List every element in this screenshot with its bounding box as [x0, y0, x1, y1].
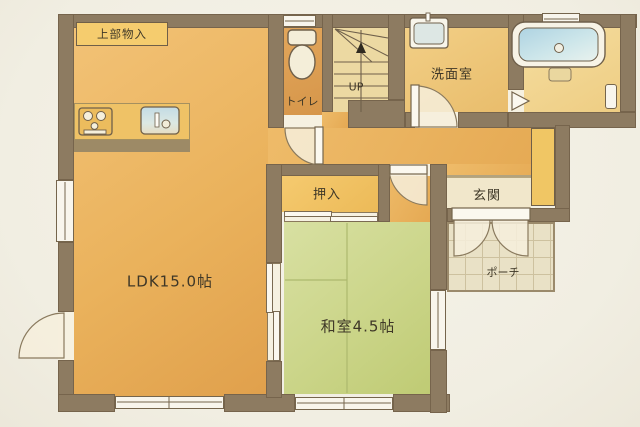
shoe-cabinet — [531, 128, 555, 206]
wall-partition-lower — [266, 361, 282, 398]
closet-label: 押入 — [313, 184, 341, 203]
window-washitsu-right — [430, 290, 446, 350]
wall-washroom-bottom — [458, 112, 508, 128]
wall-genkan-bottom-left — [447, 208, 455, 222]
kitchen-counter-edge — [74, 140, 190, 152]
window-bathroom-right — [605, 84, 617, 109]
wall-washitsu-right-lower — [430, 350, 447, 413]
entry-door-opening — [455, 208, 528, 222]
window-ldk-bottom — [115, 396, 224, 409]
wall-stairs-bottom — [348, 100, 405, 128]
porch-floor — [447, 222, 555, 292]
washroom-label: 洗面室 — [431, 64, 473, 83]
ldk-washitsu-sliding-panel-a — [266, 263, 273, 313]
wall-left-middle — [58, 242, 74, 312]
washitsu-door-opening — [390, 164, 430, 176]
wall-stairs-washroom — [388, 14, 405, 100]
wall-hall-top-stub — [405, 112, 415, 128]
wall-closet-right — [378, 164, 390, 222]
closet-sliding-door-panel-right — [330, 216, 378, 222]
window-toilet-top — [283, 15, 316, 27]
toilet-door-opening — [284, 115, 322, 128]
room-washitsu — [284, 222, 430, 394]
upper-storage-label: 上部物入 — [97, 26, 147, 42]
wall-bottom-left — [58, 394, 115, 412]
wall-left-upper — [58, 14, 74, 180]
washitsu-label: 和室4.5帖 — [321, 316, 396, 337]
room-ldk — [74, 28, 268, 396]
window-ldk-left — [56, 180, 74, 242]
stairs-up-label: UP — [349, 81, 364, 94]
corridor-hall-floor — [268, 128, 555, 164]
ldk-exterior-door-opening — [58, 312, 74, 360]
window-bathroom-top — [542, 13, 580, 25]
wall-partition-upper — [266, 164, 282, 263]
porch-label: ポーチ — [487, 264, 520, 280]
washroom-door-opening — [415, 112, 458, 128]
wall-left-lower — [58, 360, 74, 398]
wall-genkan-right — [555, 125, 570, 220]
wall-bottom-center — [224, 394, 295, 412]
closet-sliding-door-panel-left — [284, 211, 332, 217]
wall-toilet-stairs — [322, 14, 333, 112]
wall-genkan-bottom-right — [528, 208, 570, 222]
wall-bathroom-right — [620, 14, 636, 112]
wall-toilet-left — [268, 14, 284, 128]
toilet-label: トイレ — [286, 93, 319, 109]
genkan-label: 玄関 — [473, 185, 501, 204]
wall-bathroom-left — [508, 14, 524, 90]
upper-storage-label-box: 上部物入 — [76, 22, 168, 46]
kitchen-counter — [74, 103, 190, 140]
wall-bathroom-bottom — [508, 112, 636, 128]
bathroom-door-opening — [508, 90, 524, 112]
wall-closet-top — [268, 164, 390, 176]
stairs-landing-floor — [322, 112, 348, 128]
wall-washitsu-right-upper — [430, 164, 447, 290]
ldk-washitsu-sliding-panel-b — [273, 311, 280, 361]
floor-plan: 上部物入 LDK15.0帖 和室4.5帖 トイレ 洗面室 押入 玄関 ポーチ U… — [0, 0, 640, 427]
window-washitsu-bottom — [295, 397, 393, 410]
ldk-label: LDK15.0帖 — [127, 271, 213, 292]
